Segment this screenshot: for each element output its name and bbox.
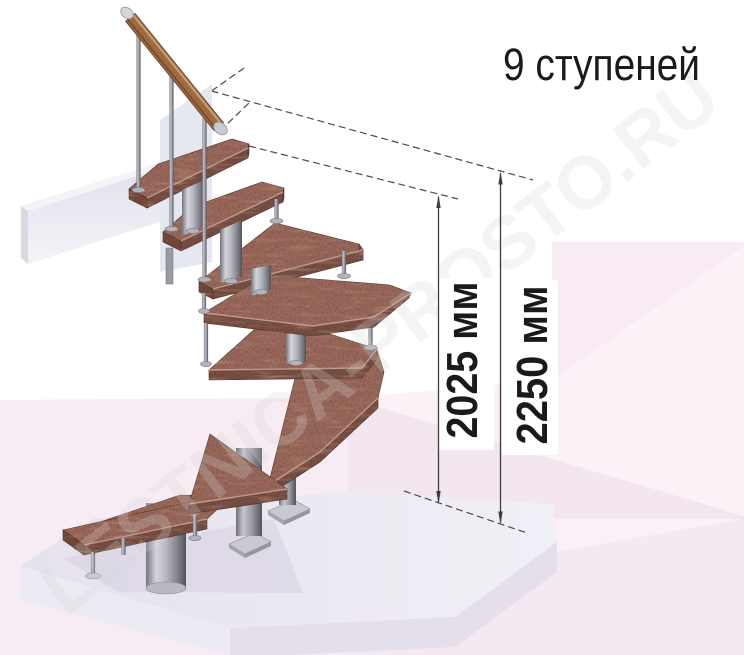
- svg-text:2250 мм: 2250 мм: [508, 286, 557, 445]
- svg-text:9 ступеней: 9 ступеней: [503, 39, 700, 90]
- svg-text:2025 мм: 2025 мм: [438, 282, 487, 439]
